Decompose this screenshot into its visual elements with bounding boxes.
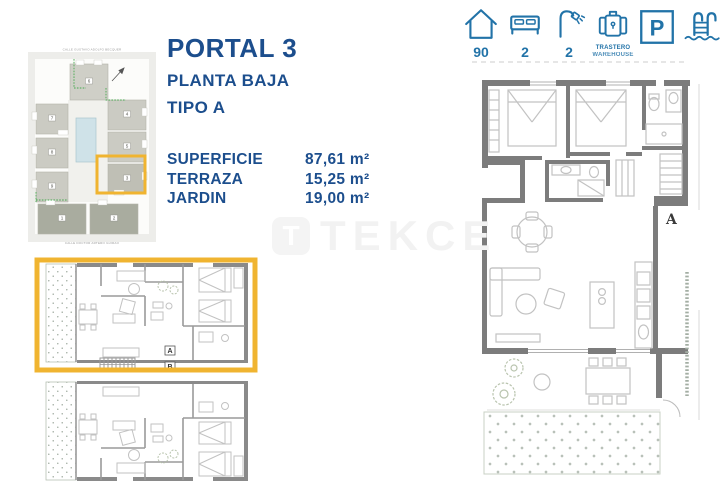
spec-row: SUPERFICIE 87,61 m² — [167, 150, 369, 170]
feature-pool — [679, 6, 723, 60]
bed-icon — [507, 6, 543, 42]
spec-row: JARDIN 19,00 m² — [167, 189, 369, 209]
storage-label-en: WAREHOUSE — [592, 52, 633, 59]
building-number: 4 — [126, 112, 129, 117]
spec-label: SUPERFICIE — [167, 150, 305, 170]
unit-a-plan — [46, 263, 248, 363]
windows — [528, 82, 650, 353]
floor-label: PLANTA BAJA — [167, 71, 297, 91]
feature-bedrooms: 2 — [503, 6, 547, 60]
spec-row: TERRAZA 15,25 m² — [167, 170, 369, 190]
spec-value: 15,25 m² — [305, 170, 369, 190]
storage-label-es: TRASTERO — [592, 45, 633, 52]
garden-area — [484, 412, 660, 474]
feature-bedrooms-value: 2 — [521, 44, 529, 60]
pool-icon — [681, 6, 721, 46]
type-label: TIPO A — [167, 98, 297, 118]
unit-b-plan — [46, 381, 248, 481]
site-plan-map: 6 7 8 9 4 5 3 1 2 CALLE GUSTAVO ADOLFO B… — [28, 44, 156, 250]
section-label: A — [665, 212, 678, 228]
apartment-walls — [482, 80, 690, 398]
building-number: 2 — [113, 216, 116, 221]
storage-icon — [595, 6, 631, 42]
terrace — [487, 358, 660, 410]
floor-plan-apartment: A — [470, 60, 714, 482]
spec-label: TERRAZA — [167, 170, 305, 190]
tekce-logo-icon: T — [272, 217, 310, 255]
house-icon — [463, 6, 499, 42]
building-number: 6 — [88, 79, 91, 84]
spec-label: JARDIN — [167, 189, 305, 209]
parking-letter: P — [650, 15, 665, 40]
features-bar: 90 2 2 — [459, 6, 723, 60]
brochure-page: 6 7 8 9 4 5 3 1 2 CALLE GUSTAVO ADOLFO B… — [0, 0, 726, 485]
feature-storage: TRASTERO WAREHOUSE — [591, 6, 635, 60]
unit-a-label: A — [167, 348, 172, 355]
building-number: 8 — [51, 150, 54, 155]
feature-parking: P — [635, 6, 679, 60]
portal-title: PORTAL 3 — [167, 33, 297, 64]
building-number: 5 — [126, 144, 129, 149]
parking-icon: P — [636, 6, 678, 48]
building-number: 1 — [61, 216, 64, 221]
spec-value: 87,61 m² — [305, 150, 369, 170]
building-number: 3 — [126, 176, 129, 181]
street-label-bottom: CALLE DOCTOR ARTERO GUIRAO — [65, 241, 120, 245]
spec-value: 19,00 m² — [305, 189, 369, 209]
building-number: 9 — [51, 184, 54, 189]
feature-bathrooms: 2 — [547, 6, 591, 60]
street-label-top: CALLE GUSTAVO ADOLFO BECQUER — [63, 48, 122, 52]
tekce-watermark: T TEKCE — [272, 212, 497, 260]
feature-bathrooms-value: 2 — [565, 44, 573, 60]
building-number: 7 — [51, 116, 54, 121]
feature-storage-caption: TRASTERO WAREHOUSE — [592, 45, 633, 59]
unit-letter-tags: A B — [165, 346, 175, 371]
pool-shape — [76, 118, 96, 162]
feature-size: 90 — [459, 6, 503, 60]
feature-size-value: 90 — [473, 44, 489, 60]
specs-table: SUPERFICIE 87,61 m² TERRAZA 15,25 m² JAR… — [167, 150, 369, 209]
title-block: PORTAL 3 PLANTA BAJA TIPO A — [167, 33, 297, 118]
floor-plan-building: A B — [33, 256, 265, 485]
watermark-text: TEKCE — [320, 212, 497, 260]
plan-surroundings — [663, 84, 699, 420]
shower-icon — [551, 6, 587, 42]
